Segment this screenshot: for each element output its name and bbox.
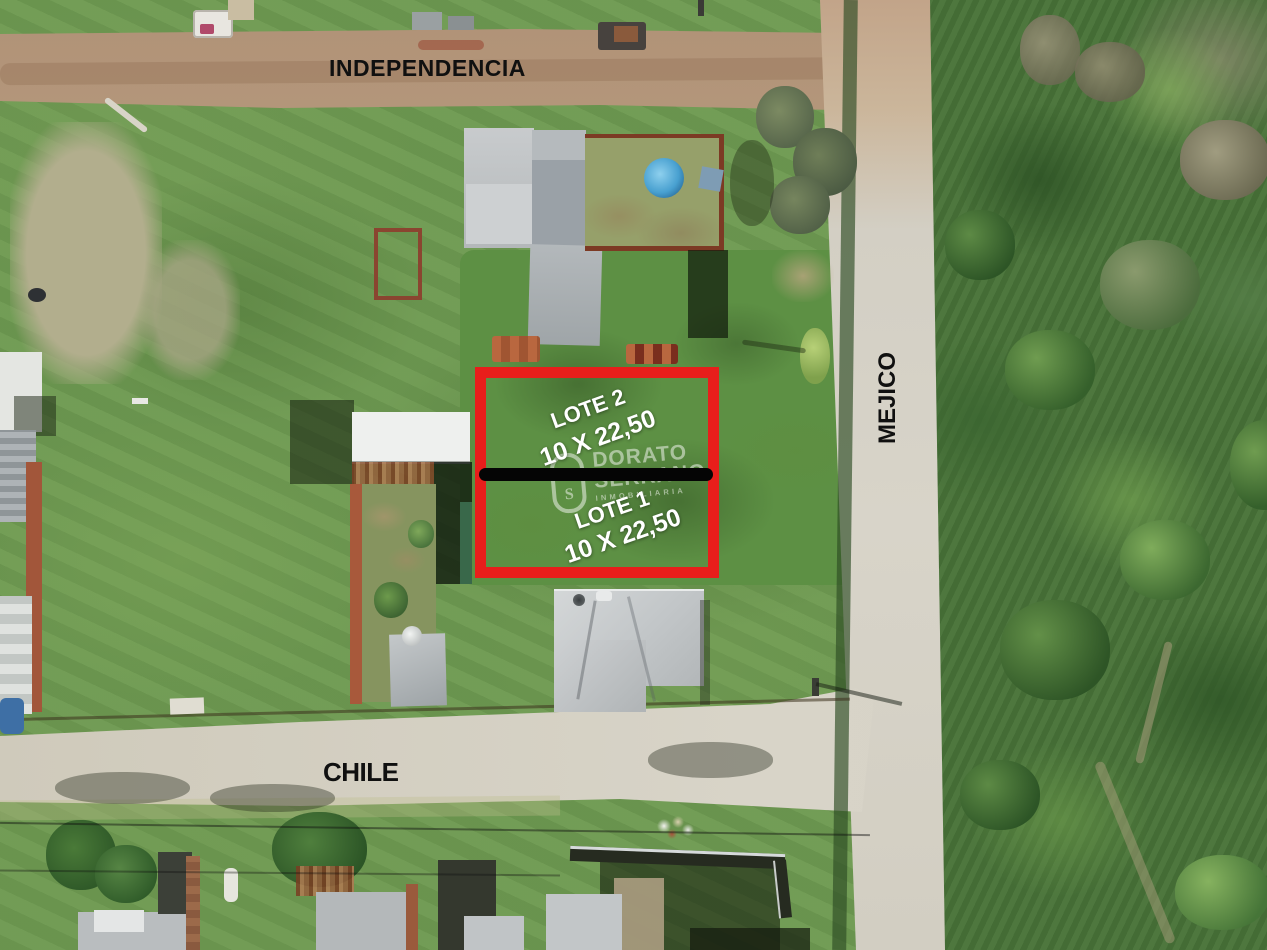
brick-pile <box>626 344 678 364</box>
sapling-tree <box>800 328 830 384</box>
building-shadow <box>290 400 354 484</box>
house-shadow <box>700 600 710 705</box>
tree <box>960 760 1040 830</box>
house-roof-wing <box>532 130 586 252</box>
tree <box>1005 330 1095 410</box>
street-label-mejico: MEJICO <box>874 338 902 458</box>
tree <box>1100 240 1200 330</box>
concrete-slab <box>228 0 254 20</box>
white-roof <box>352 412 470 464</box>
blue-tarp <box>698 166 723 191</box>
svg-text:S: S <box>564 486 574 504</box>
lot-divider-line <box>479 468 713 481</box>
bush-shadow <box>730 140 774 226</box>
tree <box>1000 600 1110 700</box>
shed-roof <box>528 244 603 346</box>
tree <box>95 845 157 903</box>
car <box>0 698 24 734</box>
white-marker <box>132 398 148 404</box>
tree <box>1120 520 1210 600</box>
brick-wall <box>350 484 362 704</box>
roof-vent <box>596 591 612 601</box>
roadside-bush <box>770 176 830 234</box>
house-roof-white <box>94 910 144 932</box>
water-tank <box>402 626 422 646</box>
chimney <box>573 594 585 606</box>
tree <box>945 210 1015 280</box>
pole <box>698 0 704 16</box>
house-roof-section <box>466 184 532 244</box>
brick-chimney <box>186 856 200 950</box>
tree-shadow <box>210 784 335 812</box>
road-debris <box>418 40 484 50</box>
shed-boxes <box>412 12 442 30</box>
house-roof <box>316 892 412 950</box>
dry-grass-patch <box>140 240 240 380</box>
dark-structure <box>688 250 728 338</box>
aerial-photo: S DORATO SERRANO INMOBILIARIA LOTE 2 10 … <box>0 0 1267 950</box>
dirt-patch <box>772 250 834 302</box>
green-tarp <box>460 502 472 584</box>
brick-wall <box>406 884 418 950</box>
yard-tree <box>408 520 434 548</box>
dry-tree <box>1020 15 1080 85</box>
trailer-rust-top <box>614 26 638 42</box>
pole <box>812 678 819 696</box>
dark-roof <box>690 928 810 950</box>
brick-pile <box>492 336 540 362</box>
junk-pile <box>654 814 702 842</box>
tree-shadow <box>55 772 190 804</box>
caravan-detail <box>200 24 214 34</box>
house-roof <box>464 916 524 950</box>
house-roof <box>546 894 622 950</box>
street-label-chile: CHILE <box>323 757 399 788</box>
dry-tree <box>1075 42 1145 102</box>
tree <box>1175 855 1267 930</box>
dry-tree <box>1180 120 1267 200</box>
building-roof <box>0 596 32 714</box>
shed-roof <box>389 633 447 706</box>
fence-line <box>719 134 724 251</box>
fence-line <box>585 134 723 138</box>
street-label-independencia: INDEPENDENCIA <box>329 55 526 82</box>
swimming-pool <box>644 158 684 198</box>
yard-tree <box>374 582 408 618</box>
shed-boxes <box>448 16 474 30</box>
trash-bag <box>28 288 46 302</box>
wood-frame <box>374 228 422 300</box>
white-slab <box>170 697 205 714</box>
house-roof-extension <box>554 640 646 712</box>
tree-shadow <box>648 742 773 778</box>
